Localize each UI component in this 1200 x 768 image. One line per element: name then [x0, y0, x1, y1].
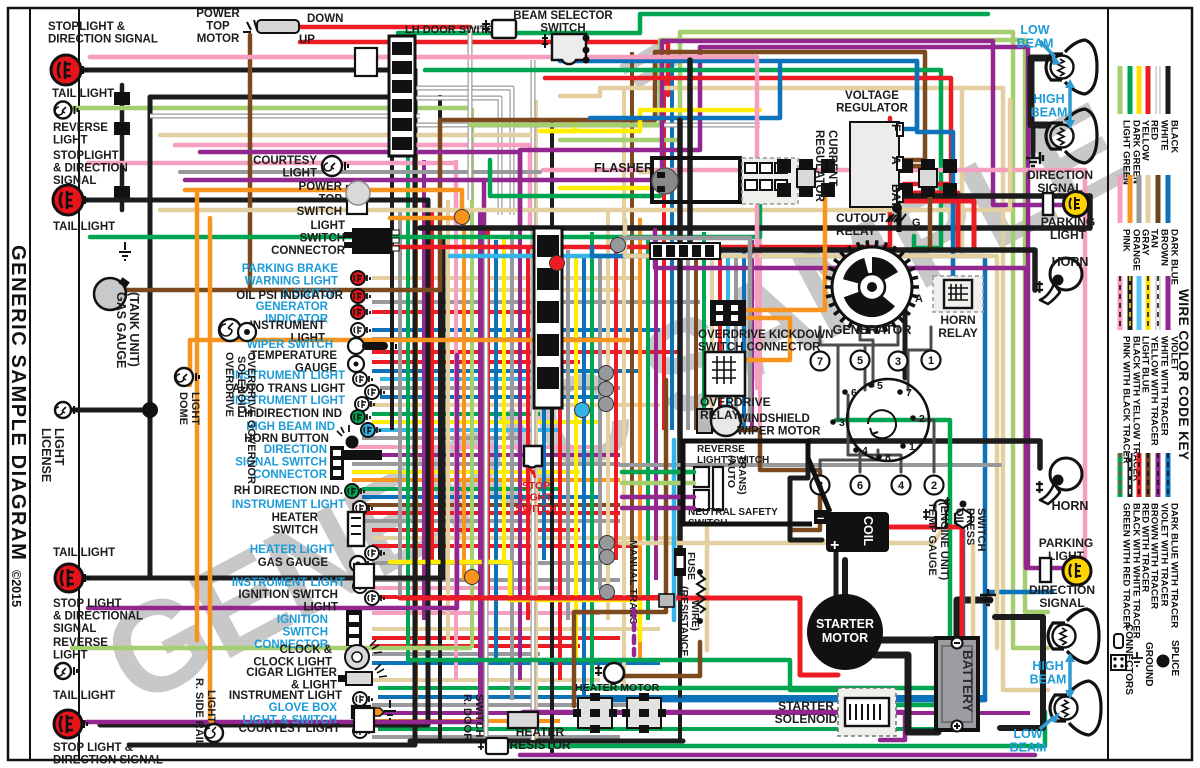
- svg-text:F: F: [889, 124, 903, 131]
- svg-text:3: 3: [895, 356, 901, 368]
- svg-text:HORN: HORN: [1052, 499, 1089, 513]
- svg-text:FUSE: FUSE: [685, 552, 697, 580]
- svg-text:GREEN WITH RED TRACER: GREEN WITH RED TRACER: [1121, 503, 1132, 629]
- svg-text:OVERDRIVE GOVERNOR: OVERDRIVE GOVERNOR: [245, 352, 257, 484]
- svg-text:TRANS): TRANS): [736, 455, 748, 495]
- svg-text:COIL: COIL: [861, 516, 875, 546]
- svg-text:3: 3: [839, 417, 845, 429]
- svg-text:6: 6: [851, 387, 857, 399]
- svg-text:G: G: [912, 217, 921, 229]
- svg-text:GAS GAUGE: GAS GAUGE: [258, 557, 329, 569]
- svg-text:OIL: OIL: [953, 508, 965, 527]
- svg-text:VOLTAGEREGULATOR: VOLTAGEREGULATOR: [836, 90, 908, 115]
- svg-text:TEMP GAUGE: TEMP GAUGE: [926, 502, 938, 576]
- svg-text:DOME: DOME: [177, 392, 189, 425]
- svg-text:8: 8: [885, 452, 891, 464]
- svg-text:GENERATOR: GENERATOR: [833, 323, 912, 337]
- svg-text:7: 7: [817, 356, 823, 368]
- svg-text:INSTRUMENT LIGHT: INSTRUMENT LIGHT: [232, 499, 345, 511]
- svg-text:+: +: [830, 537, 839, 554]
- svg-text:TAIL LIGHT: TAIL LIGHT: [53, 221, 115, 233]
- svg-text:DOWN: DOWN: [307, 13, 343, 25]
- svg-text:LIGHT: LIGHT: [189, 392, 201, 425]
- svg-text:4: 4: [862, 445, 868, 457]
- svg-text:INSTRUMENT LIGHT: INSTRUMENT LIGHT: [229, 690, 342, 702]
- svg-text:R. SIDE RAIL: R. SIDE RAIL: [193, 678, 205, 747]
- svg-text:CURRENT: CURRENT: [826, 130, 838, 186]
- svg-text:LICENSE: LICENSE: [39, 428, 53, 482]
- svg-text:HORNRELAY: HORNRELAY: [938, 313, 978, 340]
- svg-text:HEATERSWITCH: HEATERSWITCH: [272, 512, 319, 537]
- svg-text:HORN: HORN: [1052, 255, 1089, 269]
- svg-text:HEATER LIGHT: HEATER LIGHT: [250, 544, 334, 556]
- svg-text:–: –: [817, 510, 824, 525]
- svg-text:5: 5: [857, 355, 863, 367]
- svg-text:SPLICE: SPLICE: [1169, 640, 1180, 676]
- svg-text:A: A: [889, 156, 903, 165]
- svg-text:SWITCH: SWITCH: [975, 508, 987, 551]
- svg-text:GAS GAUGE: GAS GAUGE: [114, 292, 128, 368]
- svg-text:LOWBEAM: LOWBEAM: [1017, 23, 1054, 51]
- svg-text:7: 7: [906, 387, 912, 399]
- svg-text:RH DIRECTION IND.: RH DIRECTION IND.: [234, 485, 343, 497]
- svg-text:LIGHT: LIGHT: [205, 690, 217, 723]
- svg-text:STARTERSOLENOID: STARTERSOLENOID: [775, 699, 838, 726]
- svg-text:HEATERRESISTOR: HEATERRESISTOR: [509, 725, 570, 752]
- svg-text:BATTERY: BATTERY: [960, 650, 975, 712]
- svg-text:MOTOR: MOTOR: [822, 631, 868, 645]
- svg-text:LOWBEAM: LOWBEAM: [1010, 727, 1047, 755]
- svg-text:TAIL LIGHT: TAIL LIGHT: [53, 547, 115, 559]
- svg-text:HIGHBEAM: HIGHBEAM: [1031, 92, 1068, 120]
- svg-text:OVERDRIVE KICKDOWNSWITCH CONNE: OVERDRIVE KICKDOWNSWITCH CONNECTOR: [698, 329, 833, 354]
- svg-text:PRESS: PRESS: [964, 508, 976, 545]
- svg-text:1: 1: [928, 355, 934, 367]
- svg-text:GROUND: GROUND: [1143, 642, 1154, 686]
- svg-text:(TANK UNIT): (TANK UNIT): [127, 292, 141, 367]
- svg-text:GENERIC SAMPLE DIAGRAM: GENERIC SAMPLE DIAGRAM: [7, 245, 29, 561]
- svg-text:COURTESY LIGHT: COURTESY LIGHT: [239, 723, 340, 735]
- svg-text:5: 5: [877, 380, 883, 392]
- svg-text:WIRE COLOR CODE KEY: WIRE COLOR CODE KEY: [1176, 289, 1191, 461]
- svg-text:FLASHER: FLASHER: [594, 161, 653, 175]
- svg-text:TAIL LIGHT: TAIL LIGHT: [52, 88, 114, 100]
- svg-text:6: 6: [857, 480, 863, 492]
- svg-text:HIGHBEAM: HIGHBEAM: [1030, 659, 1067, 687]
- svg-text:1: 1: [909, 441, 915, 453]
- svg-text:TAIL LIGHT: TAIL LIGHT: [53, 690, 115, 702]
- svg-text:BAT: BAT: [889, 184, 903, 208]
- svg-text:(AUTO: (AUTO: [725, 455, 737, 488]
- svg-text:PINK: PINK: [1121, 229, 1132, 252]
- svg-text:CONNECTORS: CONNECTORS: [1123, 624, 1134, 695]
- svg-text:©2015: ©2015: [9, 570, 23, 607]
- svg-text:OVERDRIVE: OVERDRIVE: [223, 352, 235, 417]
- svg-text:REGULATOR: REGULATOR: [813, 130, 825, 202]
- svg-text:R. DOOR: R. DOOR: [461, 694, 473, 741]
- svg-text:INSTRUMENT LIGHT: INSTRUMENT LIGHT: [232, 577, 345, 589]
- svg-text:2: 2: [931, 480, 937, 492]
- svg-text:SWITCH: SWITCH: [473, 694, 485, 737]
- svg-text:(RESISTANCE: (RESISTANCE: [678, 586, 690, 656]
- svg-text:UP: UP: [299, 34, 315, 46]
- svg-text:4: 4: [898, 480, 905, 492]
- svg-text:HIGH BEAM IND: HIGH BEAM IND: [246, 421, 335, 433]
- svg-text:PINK WITH BLACK TRACER: PINK WITH BLACK TRACER: [1121, 336, 1132, 464]
- svg-text:(ENGINE UNIT): (ENGINE UNIT): [938, 502, 950, 581]
- svg-text:WINDSHIELDWIPER MOTOR: WINDSHIELDWIPER MOTOR: [737, 413, 821, 438]
- svg-text:LIGHT: LIGHT: [52, 428, 66, 466]
- svg-text:STARTER: STARTER: [816, 617, 874, 631]
- svg-text:2: 2: [919, 413, 925, 425]
